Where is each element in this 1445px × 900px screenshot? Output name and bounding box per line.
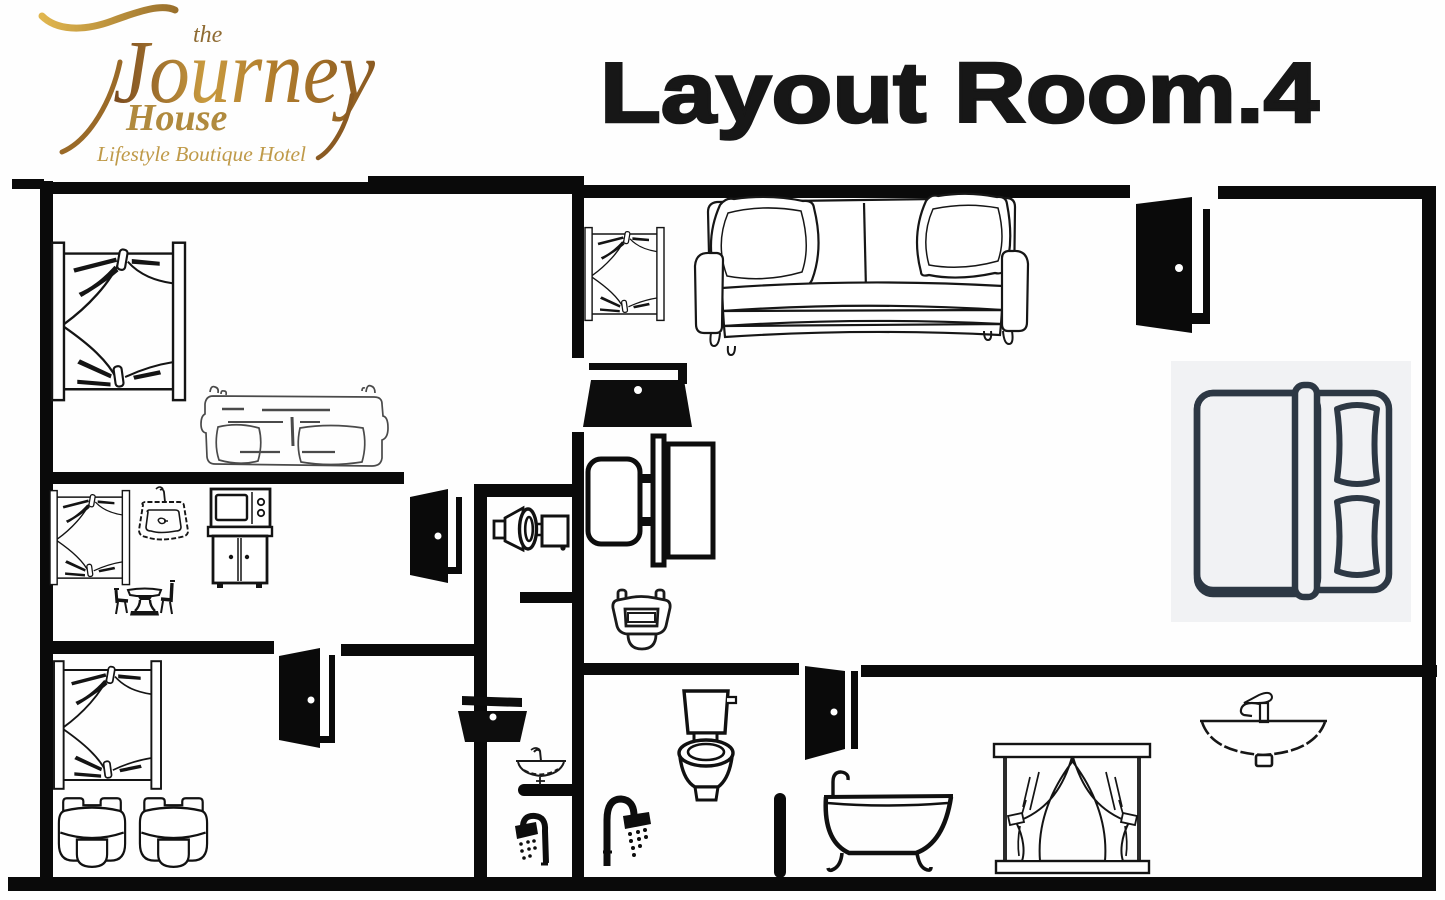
- svg-text:House: House: [125, 97, 227, 139]
- svg-text:Layout Room.4: Layout Room.4: [600, 46, 1319, 141]
- svg-text:Lifestyle Boutique Hotel: Lifestyle Boutique Hotel: [96, 142, 306, 166]
